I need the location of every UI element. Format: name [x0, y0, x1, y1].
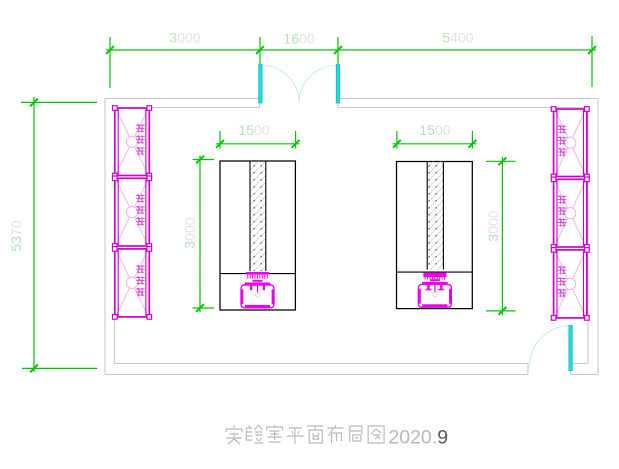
- svg-text:1500: 1500: [238, 122, 269, 138]
- svg-text:3000: 3000: [485, 210, 501, 241]
- svg-text:2020.9: 2020.9: [388, 427, 448, 449]
- svg-text:1600: 1600: [283, 31, 314, 47]
- svg-text:1500: 1500: [419, 122, 450, 138]
- svg-text:5370: 5370: [8, 220, 24, 251]
- svg-text:3000: 3000: [182, 217, 198, 248]
- svg-text:3000: 3000: [169, 30, 200, 46]
- svg-text:5400: 5400: [442, 30, 473, 46]
